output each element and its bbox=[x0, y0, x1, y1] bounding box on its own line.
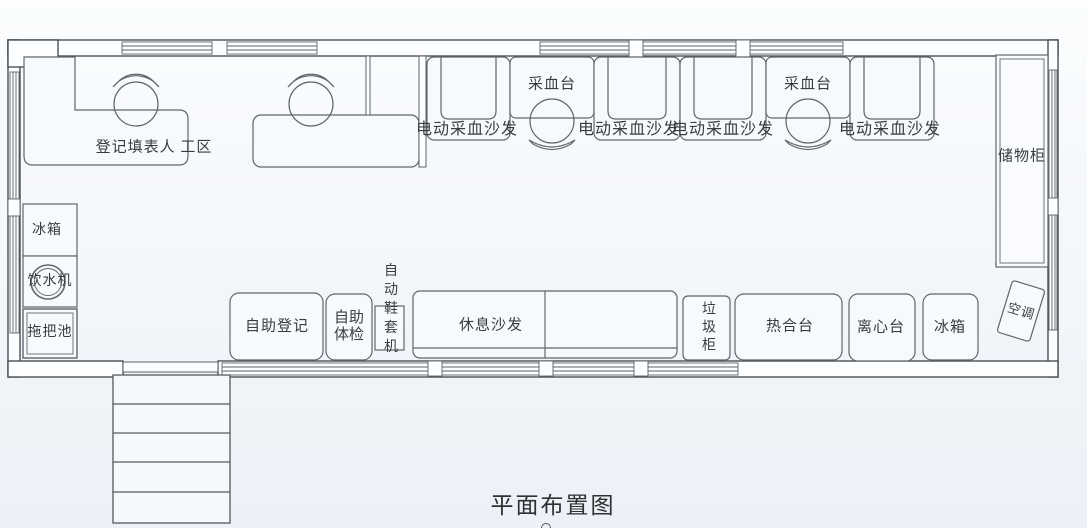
rest-sofa-label: 休息沙发 bbox=[459, 317, 523, 334]
refrigerator-bottom-label: 冰箱 bbox=[934, 319, 966, 336]
garbage-cabinet-label: 垃圾柜 bbox=[699, 301, 715, 355]
self-checkup-label: 自助体检 bbox=[332, 310, 366, 345]
blood-sofa-4-label: 电动采血沙发 bbox=[839, 121, 941, 139]
mop-sink-label: 拖把池 bbox=[28, 325, 73, 341]
self-registration-label: 自助登记 bbox=[245, 318, 309, 335]
refrigerator-top-label: 冰箱 bbox=[32, 223, 62, 239]
area-partition bbox=[419, 56, 426, 167]
title-circle bbox=[542, 524, 551, 528]
registration-desk-2 bbox=[253, 56, 419, 167]
water-dispenser-label: 饮水机 bbox=[28, 274, 73, 290]
shoe-cover-machine-label: 自动鞋套机 bbox=[381, 263, 397, 358]
plan-title: 平面布置图 bbox=[491, 493, 616, 519]
blood-sofa-1-label: 电动采血沙发 bbox=[416, 121, 518, 139]
blood-sofa-2-label: 电动采血沙发 bbox=[578, 121, 680, 139]
floor-plan-canvas: 登记填表人 工区 采血台 采血台 电动采血沙发 电动采血沙发 电动采血沙发 电动… bbox=[0, 0, 1087, 528]
heat-sealer-label: 热合台 bbox=[766, 318, 814, 335]
blood-table-1-label: 采血台 bbox=[528, 76, 576, 93]
top-window-2 bbox=[227, 42, 317, 54]
blood-sofa-3-label: 电动采血沙发 bbox=[672, 121, 774, 139]
registration-area-label: 登记填表人 工区 bbox=[96, 139, 213, 156]
left-window bbox=[8, 72, 20, 333]
blood-table-2-label: 采血台 bbox=[784, 76, 832, 93]
bottom-window-strip bbox=[222, 361, 738, 376]
entry-threshold bbox=[123, 362, 218, 372]
centrifuge-label: 离心台 bbox=[857, 319, 905, 336]
top-window-1 bbox=[122, 42, 212, 54]
stairs bbox=[113, 375, 230, 523]
rest-sofa bbox=[413, 291, 677, 358]
storage-cabinet-label: 储物柜 bbox=[998, 148, 1046, 165]
